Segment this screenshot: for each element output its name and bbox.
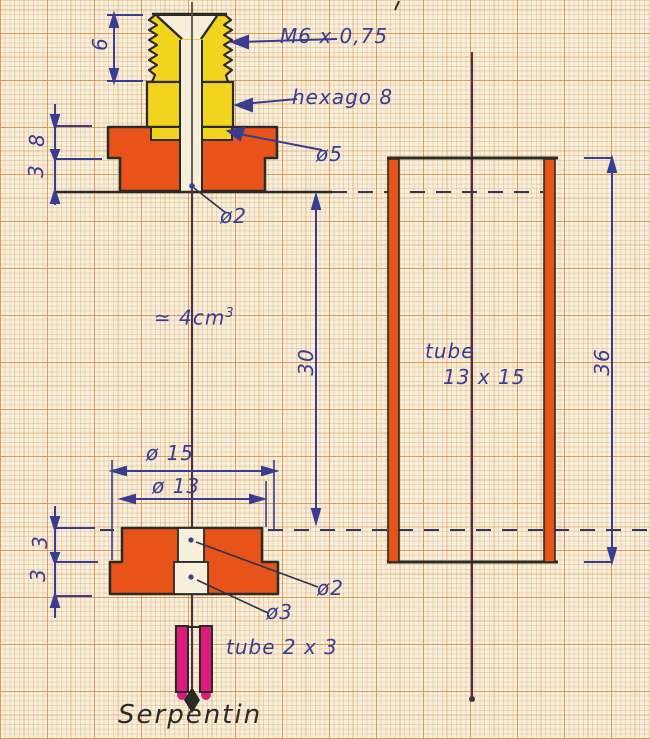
cap-hole-phi2: [178, 528, 204, 562]
tube-label-line1: tube: [425, 341, 475, 361]
phi15-label: ø 15: [146, 443, 194, 463]
hex-label: hexago 8: [292, 87, 393, 107]
thread-spec-label: M6 x 0,75: [280, 26, 388, 46]
dim-36-label: 36: [592, 344, 612, 380]
dim-8-label: 8: [27, 128, 47, 152]
small-tube-label: tube 2 x 3: [226, 637, 338, 657]
tube-label-line2: 13 x 15: [443, 367, 525, 387]
graph-paper-sheet: 6 M6 x 0,75 hexago 8 ø5 8 3 ø2 ≃ 4cm3 30…: [0, 0, 650, 739]
sketch-canvas: [0, 0, 650, 739]
bottom-view-cap: [110, 528, 278, 594]
phi3-label: ø3: [266, 602, 293, 622]
phi2-bottom-label: ø2: [317, 578, 344, 598]
phi2-top-label: ø2: [220, 206, 247, 226]
volume-exponent: 3: [225, 306, 234, 321]
tube-wall-left: [388, 159, 399, 562]
dim-30-label: 30: [296, 344, 316, 380]
bore-channel: [179, 40, 203, 192]
volume-text: ≃ 4cm: [154, 306, 225, 330]
dim-3-top-label: 3: [26, 159, 46, 183]
serpentin-label: Serpentin: [118, 702, 262, 728]
phi5-label: ø5: [316, 144, 343, 164]
volume-label: ≃ 4cm3: [154, 307, 235, 328]
dim-3-cap-lower-label: 3: [28, 563, 48, 587]
dim-3-cap-upper-label: 3: [30, 530, 50, 554]
dim-6-label: 6: [90, 32, 110, 56]
tube-wall-right: [544, 159, 555, 562]
phi13-label: ø 13: [152, 476, 200, 496]
